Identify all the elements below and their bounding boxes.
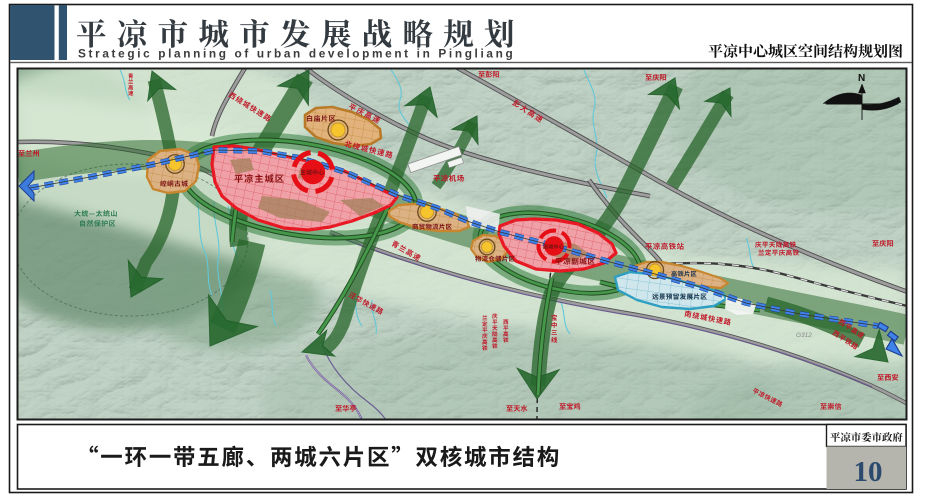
svg-text:Strategic planning of urban de: Strategic planning of urban development … (78, 47, 515, 61)
svg-text:10: 10 (854, 456, 883, 488)
svg-text:N: N (858, 73, 865, 84)
svg-text:G312: G312 (796, 332, 812, 339)
